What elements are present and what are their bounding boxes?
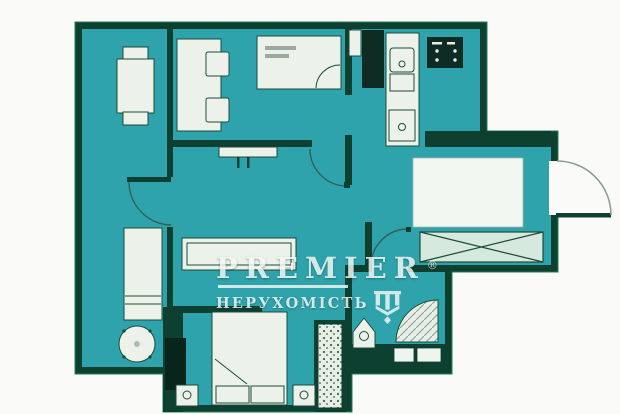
nightstand-icon: [176, 385, 198, 406]
dining-table-icon: [117, 59, 154, 113]
chair-icon: [206, 98, 229, 122]
stove: [427, 37, 463, 68]
single-bed-icon: [124, 228, 162, 320]
pillow-icon: [251, 386, 284, 403]
stove-icon: [427, 37, 463, 68]
cabinet-icon: [349, 30, 361, 56]
ventilation-shaft-icon: [318, 324, 342, 408]
radiator-icon: [219, 147, 277, 157]
kitchen-counter-icon: [257, 36, 341, 89]
entry-zone: [413, 158, 523, 227]
floor-plan: PREMIER ® НЕРУХОМІСТЬ: [0, 0, 620, 414]
chair-icon: [123, 112, 148, 125]
dining-area: [117, 47, 154, 125]
wardrobe: [420, 232, 543, 262]
wall-column: [165, 338, 186, 390]
entry-door-opening: [549, 161, 560, 215]
left-room-door-leaf: [127, 177, 171, 182]
kitchen-counter: [257, 36, 341, 89]
bath-fitting-icon: [417, 348, 441, 362]
fridge-icon: [362, 30, 384, 88]
counter-label-smudge: [265, 54, 289, 58]
sofa: [182, 238, 296, 270]
entry-door-swing-arc: [557, 161, 611, 215]
desk-area: [177, 39, 229, 131]
chair-icon: [206, 52, 229, 76]
bath-fitting-icon: [394, 348, 414, 362]
floor-plan-drawing: [0, 0, 620, 414]
entry-door-leaf: [556, 213, 611, 218]
kitchen-strip: [386, 33, 419, 146]
chair-icon: [123, 47, 148, 60]
nightstand-icon: [293, 385, 315, 406]
entry-door: [549, 161, 611, 218]
counter-label-smudge: [265, 46, 296, 50]
pillow-icon: [216, 386, 249, 403]
